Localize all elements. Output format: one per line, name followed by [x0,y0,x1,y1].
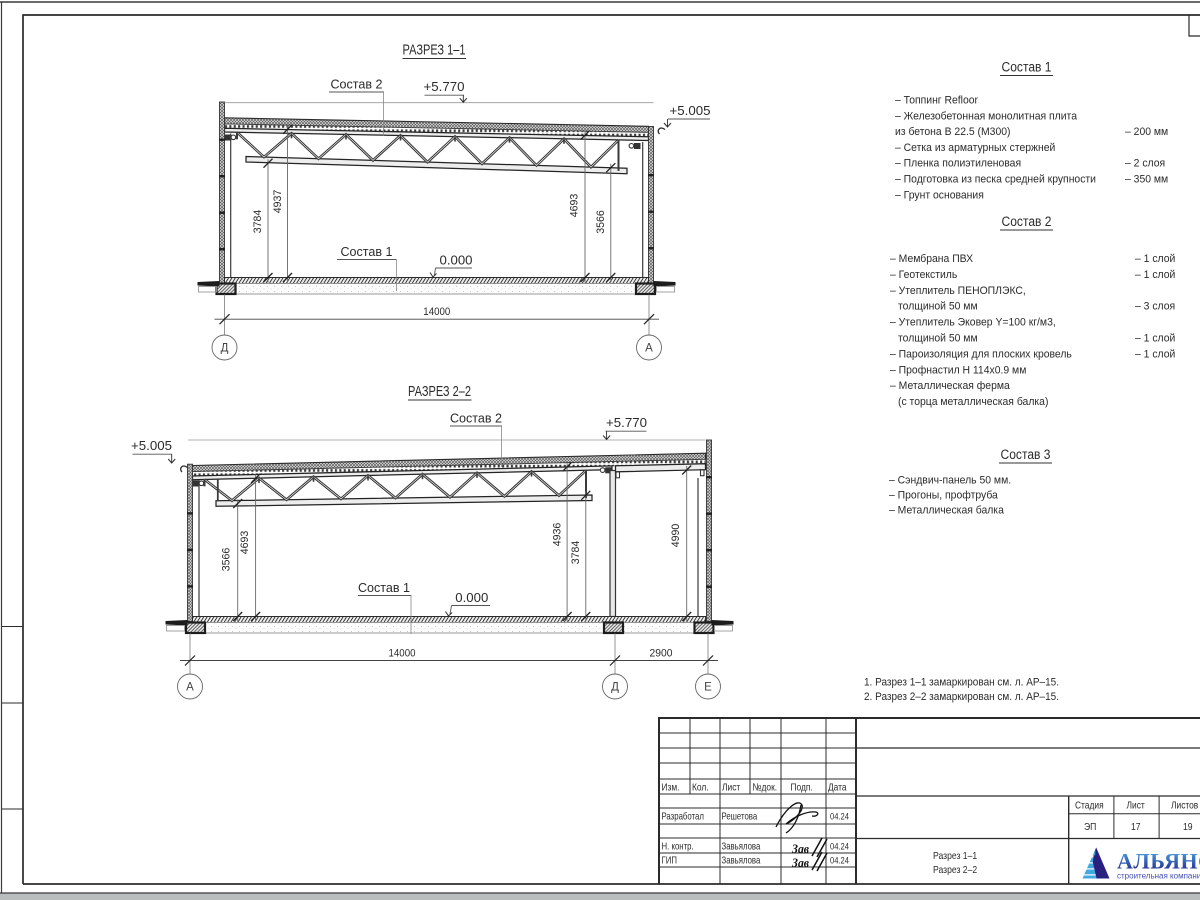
svg-text:Е: Е [704,682,712,694]
svg-text:Изм.: Изм. [662,782,680,794]
svg-text:– Утеплитель ПЕНОПЛЭКС,: – Утеплитель ПЕНОПЛЭКС, [890,284,1026,296]
svg-text:Дата: Дата [828,782,847,794]
svg-text:– Железобетонная монолитная п: – Железобетонная монолитная плита [895,110,1077,122]
svg-text:ГИП: ГИП [662,855,677,866]
svg-text:Состав 1: Состав 1 [341,245,393,259]
svg-text:– Металлическая ферма: – Металлическая ферма [890,380,1010,392]
svg-text:4693: 4693 [569,194,581,218]
svg-text:– Мембрана ПВХ: – Мембрана ПВХ [890,253,973,265]
svg-text:(с торца металлическая балка): (с торца металлическая балка) [898,396,1048,408]
svg-text:0.000: 0.000 [440,254,473,268]
svg-text:Стадия: Стадия [1075,800,1104,812]
svg-text:АЛЬЯНС: АЛЬЯНС [1117,849,1200,874]
svg-text:– 2 слоя: – 2 слоя [1125,157,1165,169]
svg-text:Зав: Зав [791,855,809,870]
svg-text:– Геотекстиль: – Геотекстиль [890,269,958,281]
svg-text:14000: 14000 [423,306,450,318]
svg-text:+5.005: +5.005 [670,104,711,118]
svg-text:РАЗРЕЗ 2–2: РАЗРЕЗ 2–2 [408,384,471,400]
svg-text:Состав 3: Состав 3 [1001,447,1051,462]
svg-text:Завьялова: Завьялова [722,855,761,866]
svg-text:№док.: №док. [753,782,778,794]
svg-text:Состав 2: Состав 2 [1002,214,1052,229]
svg-text:– Подготовка из песка средней: – Подготовка из песка средней крупности [895,173,1096,185]
svg-text:– Прогоны, профтруба: – Прогоны, профтруба [889,489,998,501]
svg-text:Зав: Зав [791,841,809,856]
svg-text:Завьялова: Завьялова [722,841,761,852]
svg-text:ЭП: ЭП [1084,821,1096,833]
svg-text:РАЗРЕЗ 1–1: РАЗРЕЗ 1–1 [403,43,466,59]
svg-text:4936: 4936 [552,523,564,547]
svg-text:– 350 мм: – 350 мм [1125,173,1168,185]
svg-text:Разрез 2–2: Разрез 2–2 [933,864,977,876]
svg-text:Лист: Лист [1127,800,1146,812]
svg-text:– Пленка полиэтиленовая: – Пленка полиэтиленовая [895,157,1021,169]
svg-text:– Пароизоляция для плоских кро: – Пароизоляция для плоских кровель [890,348,1072,360]
svg-text:Д: Д [611,682,619,694]
svg-text:Листов: Листов [1171,800,1198,812]
svg-text:толщиной 50 мм: толщиной 50 мм [898,332,978,344]
svg-text:04.24: 04.24 [830,811,849,822]
svg-text:4937: 4937 [272,190,284,214]
svg-text:+5.770: +5.770 [424,80,465,94]
svg-text:строительная компания: строительная компания [1117,872,1200,881]
svg-text:Состав 2: Состав 2 [450,412,502,426]
svg-text:3566: 3566 [595,210,607,234]
svg-text:А: А [645,343,653,355]
svg-text:17: 17 [1131,821,1141,833]
svg-text:– Сетка из арматурных стержней: – Сетка из арматурных стержней [895,142,1055,154]
svg-text:– Металлическая балка: – Металлическая балка [889,504,1004,516]
svg-text:толщиной 50 мм: толщиной 50 мм [898,300,978,312]
svg-text:4990: 4990 [670,524,682,548]
svg-text:Д: Д [221,343,229,355]
svg-text:– 1 слой: – 1 слой [1135,253,1175,265]
svg-text:– 1 слой: – 1 слой [1135,269,1175,281]
svg-text:Разработал: Разработал [662,811,704,822]
svg-text:– 3 слоя: – 3 слоя [1135,300,1175,312]
svg-text:Состав 1: Состав 1 [1002,60,1052,75]
svg-text:19: 19 [1183,821,1193,833]
svg-text:04.24: 04.24 [830,855,849,866]
svg-text:1. Разрез 1–1 замаркирован см.: 1. Разрез 1–1 замаркирован см. л. АР–15. [864,676,1059,689]
svg-text:Н. контр.: Н. контр. [662,841,694,852]
svg-text:+5.005: +5.005 [131,439,172,453]
svg-text:– 200 мм: – 200 мм [1125,126,1168,138]
svg-text:Лист: Лист [722,782,741,794]
svg-text:– Сэндвич-панель 50 мм.: – Сэндвич-панель 50 мм. [889,474,1011,486]
svg-text:А: А [186,682,194,694]
svg-text:– 1 слой: – 1 слой [1135,332,1175,344]
svg-text:– Профнастил Н 114х0.9 мм: – Профнастил Н 114х0.9 мм [890,364,1026,376]
svg-text:– 1 слой: – 1 слой [1135,348,1175,360]
svg-text:3784: 3784 [252,210,264,234]
svg-text:3566: 3566 [221,548,233,572]
svg-text:2900: 2900 [650,648,673,660]
svg-text:Решетова: Решетова [722,811,758,822]
svg-text:0.000: 0.000 [455,591,488,605]
svg-text:Кол.: Кол. [692,782,709,794]
svg-text:Разрез 1–1: Разрез 1–1 [933,850,977,862]
svg-text:Состав 2: Состав 2 [331,78,383,92]
svg-text:– Грунт основания: – Грунт основания [895,189,984,201]
svg-text:14000: 14000 [389,648,416,660]
svg-text:из бетона В 22.5 (М300): из бетона В 22.5 (М300) [895,126,1010,138]
svg-text:– Топпинг Refloor: – Топпинг Refloor [895,94,978,106]
svg-text:3784: 3784 [570,541,582,565]
svg-text:4693: 4693 [239,531,251,555]
svg-text:Подп.: Подп. [791,782,813,794]
svg-text:+5.770: +5.770 [606,416,647,430]
svg-text:2. Разрез 2–2 замаркирован см.: 2. Разрез 2–2 замаркирован см. л. АР–15. [864,690,1059,703]
svg-text:Состав 1: Состав 1 [358,581,410,595]
svg-text:04.24: 04.24 [830,841,849,852]
svg-text:– Утеплитель Эковер Y=100 кг/м: – Утеплитель Эковер Y=100 кг/м3, [890,316,1056,328]
